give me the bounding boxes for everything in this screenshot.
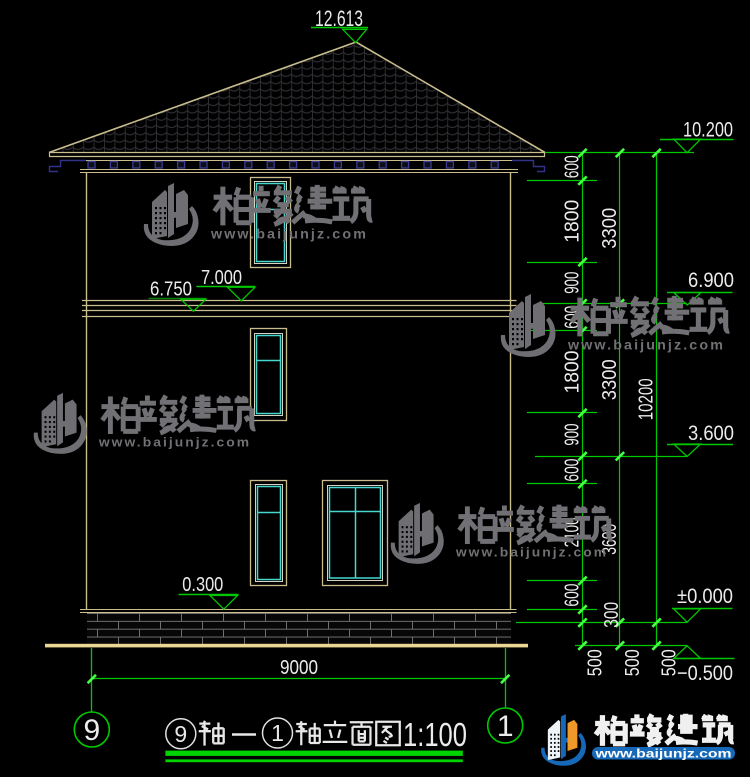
svg-text:600: 600 — [562, 155, 584, 178]
svg-text:www.baijunjz.com: www.baijunjz.com — [594, 748, 731, 760]
svg-text:300: 300 — [601, 602, 623, 628]
svg-text:600: 600 — [562, 584, 584, 607]
svg-text:0.300: 0.300 — [182, 574, 223, 596]
svg-text:3300: 3300 — [599, 208, 621, 249]
svg-text:7.000: 7.000 — [201, 267, 242, 289]
svg-text:1: 1 — [497, 710, 514, 743]
svg-text:900: 900 — [562, 272, 584, 294]
svg-text:500: 500 — [622, 649, 644, 676]
svg-text:1:100: 1:100 — [403, 716, 467, 753]
svg-text:500: 500 — [585, 649, 607, 676]
svg-text:1800: 1800 — [562, 200, 584, 243]
svg-text:3.600: 3.600 — [688, 422, 734, 445]
svg-text:9000: 9000 — [280, 657, 318, 679]
svg-text:−0.500: −0.500 — [677, 662, 733, 685]
svg-text:10.200: 10.200 — [683, 118, 733, 141]
svg-text:±0.000: ±0.000 — [677, 585, 733, 608]
svg-text:9: 9 — [174, 721, 187, 747]
svg-text:900: 900 — [562, 424, 584, 446]
svg-text:6.750: 6.750 — [150, 279, 192, 301]
svg-text:9: 9 — [83, 714, 100, 747]
svg-text:1: 1 — [271, 720, 284, 746]
svg-text:600: 600 — [562, 459, 584, 482]
svg-text:3300: 3300 — [599, 359, 621, 400]
svg-text:10200: 10200 — [636, 378, 658, 420]
svg-text:6.900: 6.900 — [688, 269, 734, 292]
svg-text:1800: 1800 — [562, 351, 584, 394]
